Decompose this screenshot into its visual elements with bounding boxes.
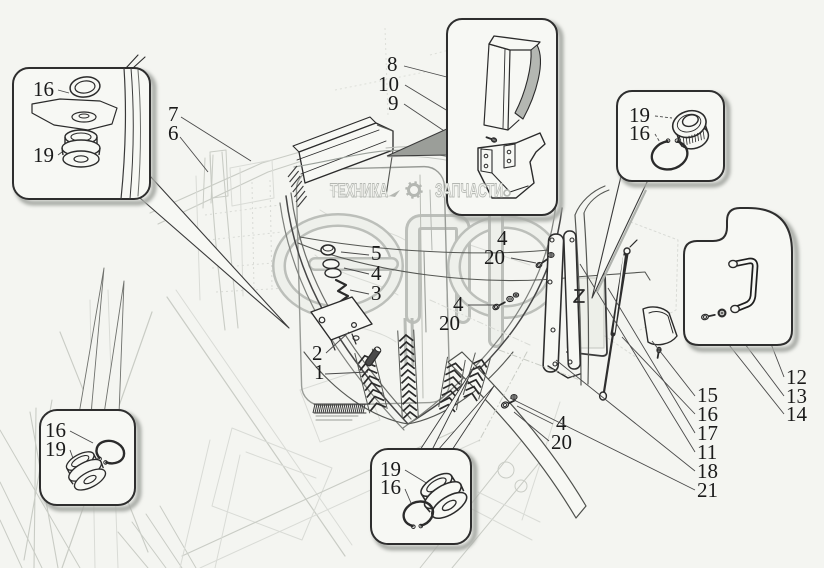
- svg-text:19: 19: [33, 143, 54, 167]
- svg-text:ЗАПЧАСТИ: ЗАПЧАСТИ: [435, 181, 503, 202]
- svg-text:1: 1: [314, 360, 325, 384]
- svg-text:19: 19: [45, 437, 66, 461]
- svg-text:16: 16: [33, 77, 54, 101]
- svg-text:20: 20: [439, 311, 460, 335]
- svg-text:6: 6: [168, 121, 179, 145]
- svg-text:3: 3: [371, 281, 382, 305]
- svg-text:20: 20: [484, 245, 505, 269]
- svg-text:21: 21: [697, 478, 718, 502]
- svg-text:14: 14: [786, 402, 808, 426]
- svg-text:16: 16: [380, 475, 401, 499]
- svg-text:20: 20: [551, 430, 572, 454]
- svg-text:ТЕХНИКА: ТЕХНИКА: [330, 181, 388, 202]
- svg-text:16: 16: [629, 121, 650, 145]
- svg-text:9: 9: [388, 91, 399, 115]
